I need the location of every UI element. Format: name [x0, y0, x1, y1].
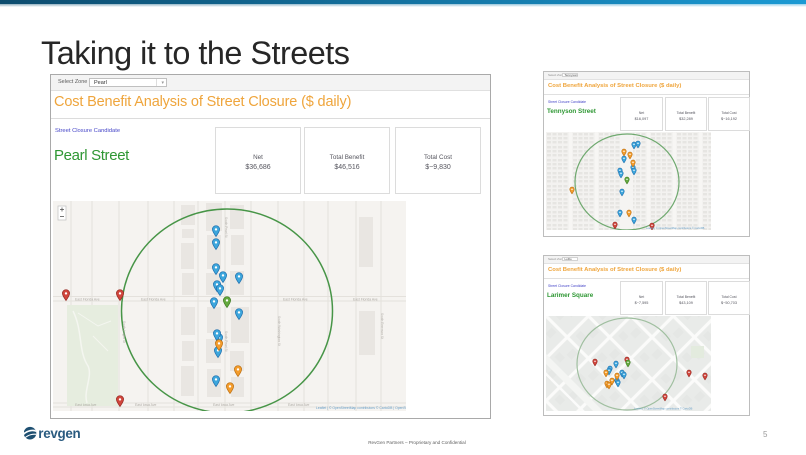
svg-text:East Florida Ave: East Florida Ave [353, 298, 378, 302]
svg-text:East Iowa Ave: East Iowa Ave [288, 403, 310, 407]
svg-text:East Florida Ave: East Florida Ave [141, 298, 166, 302]
svg-text:revgen: revgen [38, 426, 80, 441]
svg-text:East Iowa Ave: East Iowa Ave [135, 403, 157, 407]
svg-text:Leaflet | © OpenStreetMap cont: Leaflet | © OpenStreetMap contributors ©… [316, 406, 406, 410]
svg-text:South Washington St: South Washington St [277, 316, 281, 346]
svg-text:Leaflet | © OpenStreetMap cont: Leaflet | © OpenStreetMap contributors ©… [646, 226, 705, 230]
svg-text:East Florida Ave: East Florida Ave [283, 298, 308, 302]
svg-text:South Pearl St: South Pearl St [224, 331, 228, 352]
svg-text:Leaflet | © OpenStreetMap cont: Leaflet | © OpenStreetMap contributors ©… [634, 407, 693, 411]
svg-text:South Logan St: South Logan St [122, 321, 126, 343]
svg-text:East Florida Ave: East Florida Ave [75, 298, 100, 302]
svg-text:South Emerson St: South Emerson St [380, 313, 384, 339]
svg-text:East Iowa Ave: East Iowa Ave [213, 403, 235, 407]
svg-text:East Iowa Ave: East Iowa Ave [75, 403, 97, 407]
svg-text:South Pearl St: South Pearl St [224, 217, 228, 238]
